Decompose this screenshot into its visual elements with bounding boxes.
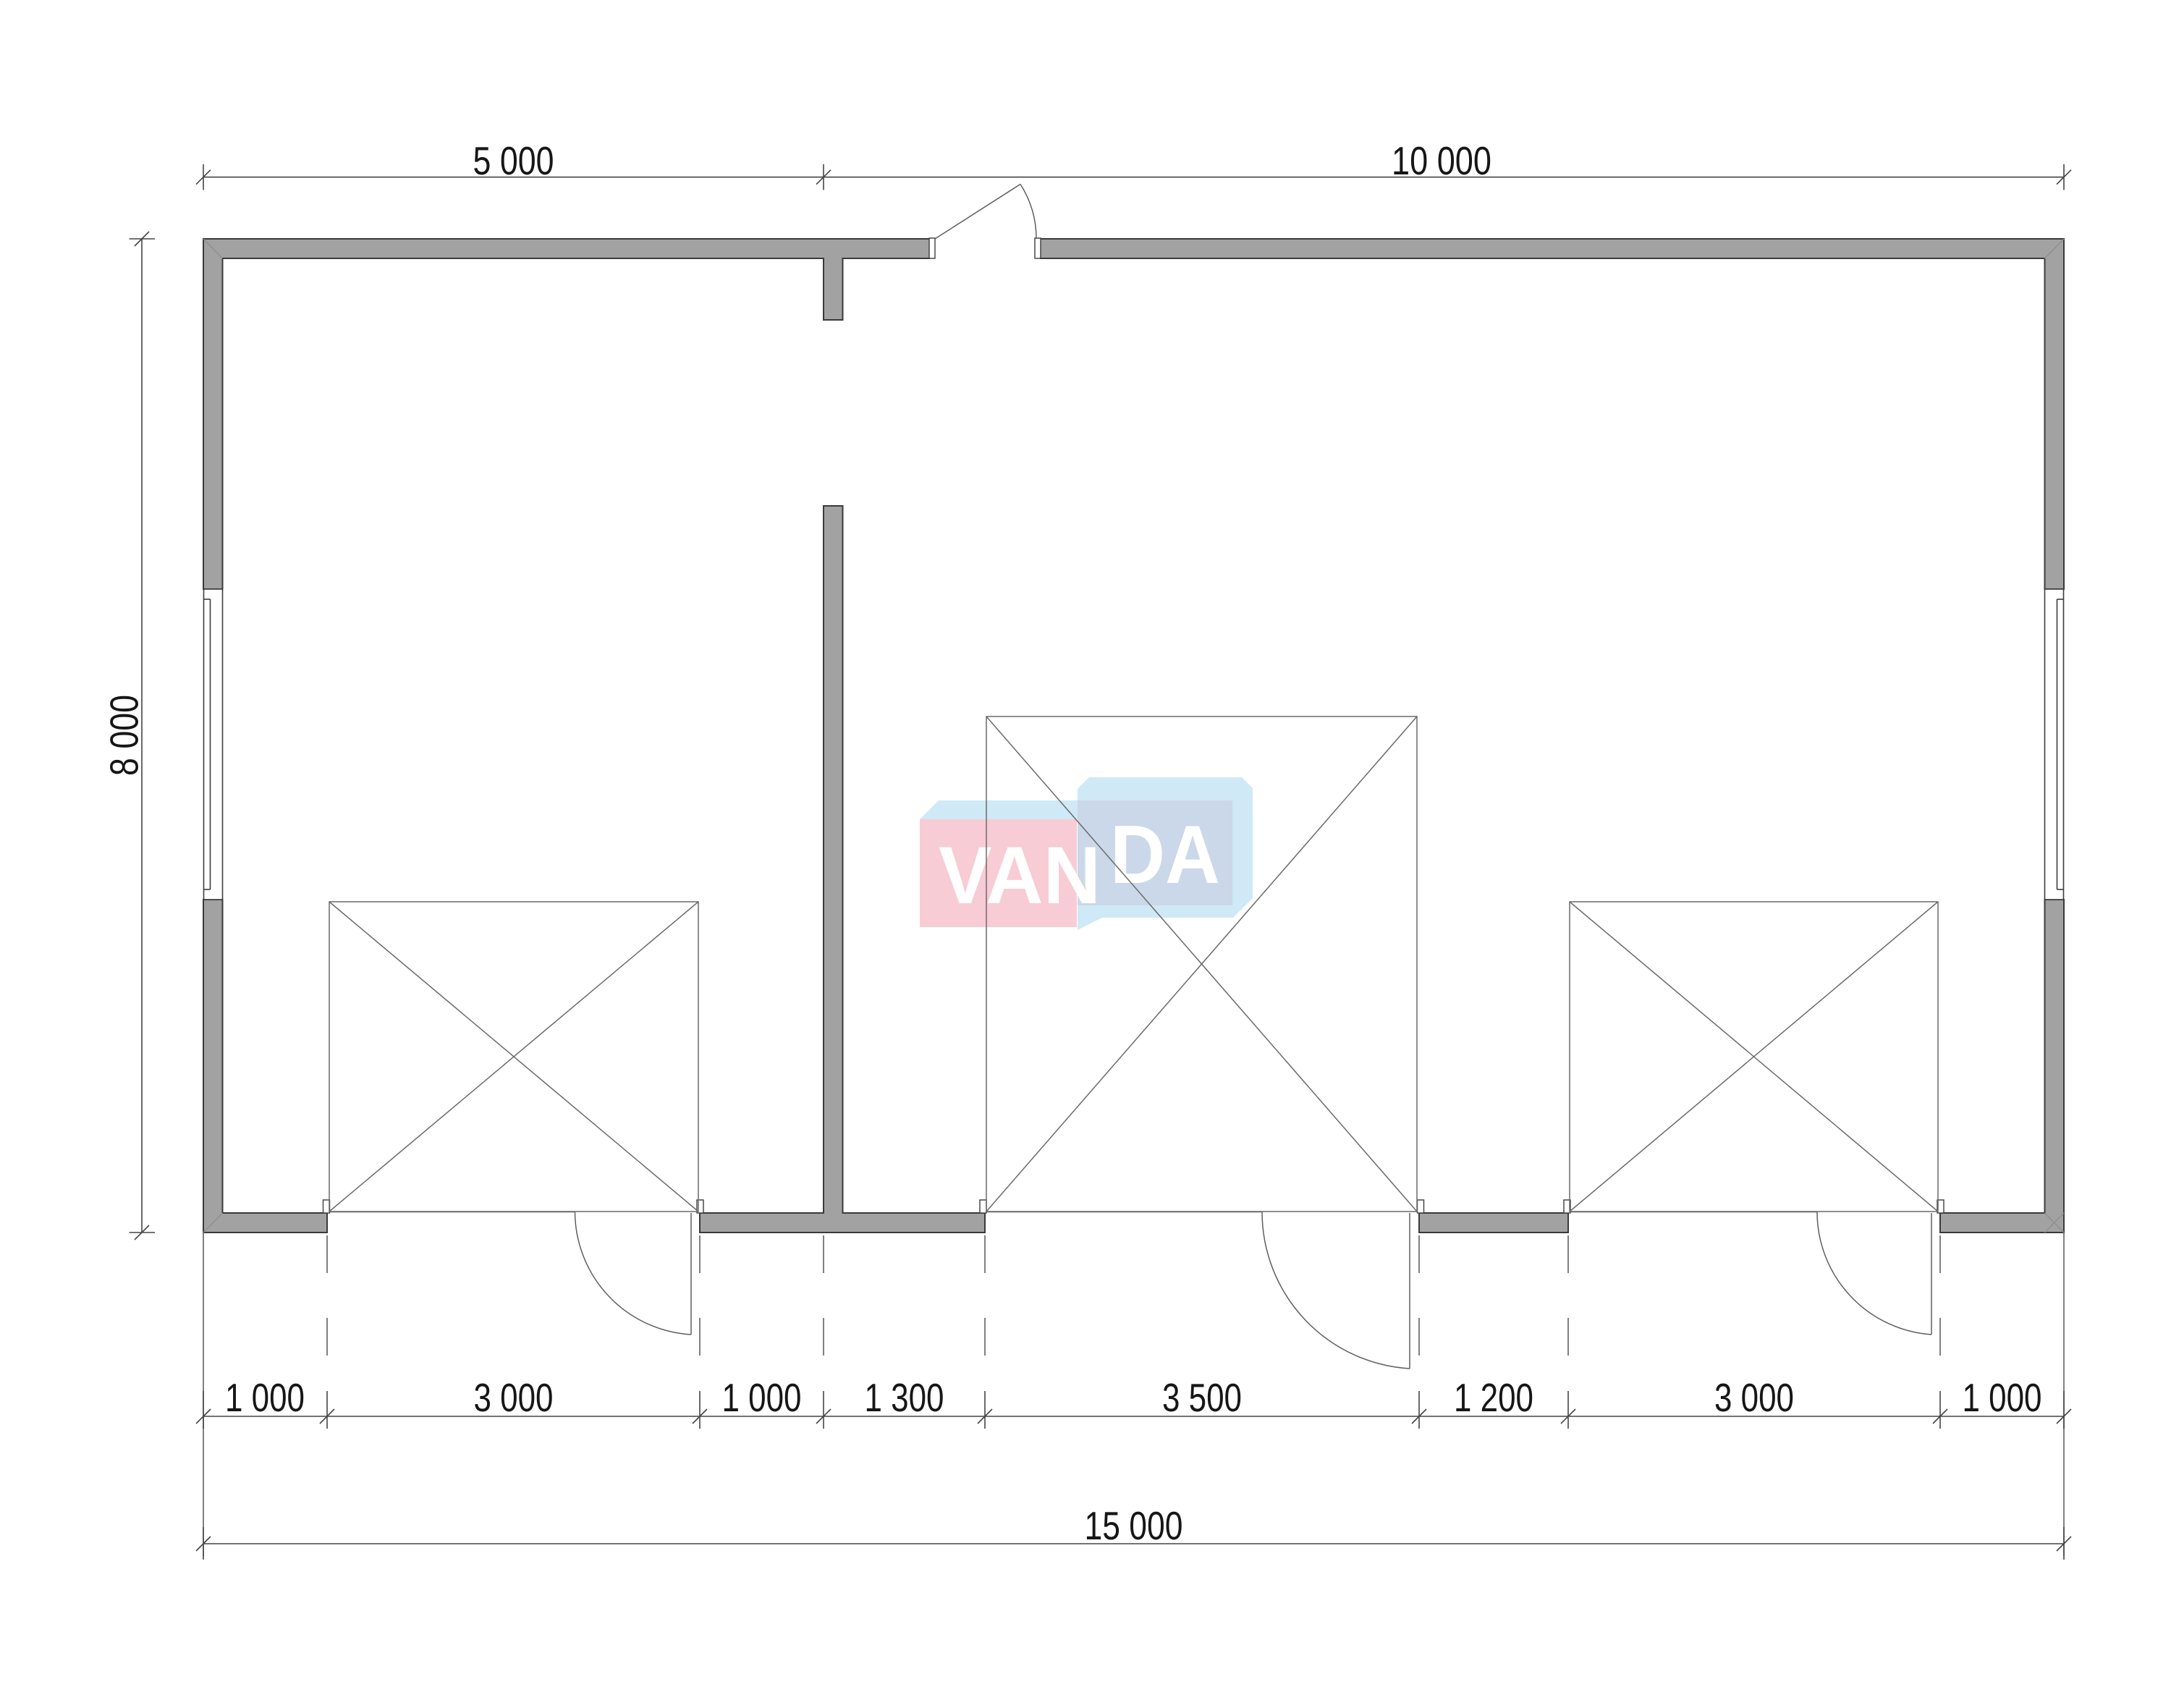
svg-text:1 000: 1 000 — [225, 1375, 305, 1420]
svg-text:1 300: 1 300 — [865, 1375, 944, 1420]
svg-text:1 200: 1 200 — [1454, 1375, 1533, 1420]
svg-text:10 000: 10 000 — [1392, 138, 1491, 183]
svg-text:5 000: 5 000 — [473, 138, 554, 183]
svg-text:15 000: 15 000 — [1085, 1503, 1183, 1548]
svg-text:3 000: 3 000 — [1714, 1375, 1794, 1420]
svg-text:1 000: 1 000 — [1963, 1375, 2042, 1420]
svg-text:3 000: 3 000 — [474, 1375, 554, 1420]
svg-text:8 000: 8 000 — [102, 695, 147, 776]
svg-text:3 500: 3 500 — [1162, 1375, 1242, 1420]
svg-text:VAN: VAN — [939, 830, 1101, 921]
svg-text:DA: DA — [1110, 809, 1220, 901]
svg-text:1 000: 1 000 — [722, 1375, 802, 1420]
